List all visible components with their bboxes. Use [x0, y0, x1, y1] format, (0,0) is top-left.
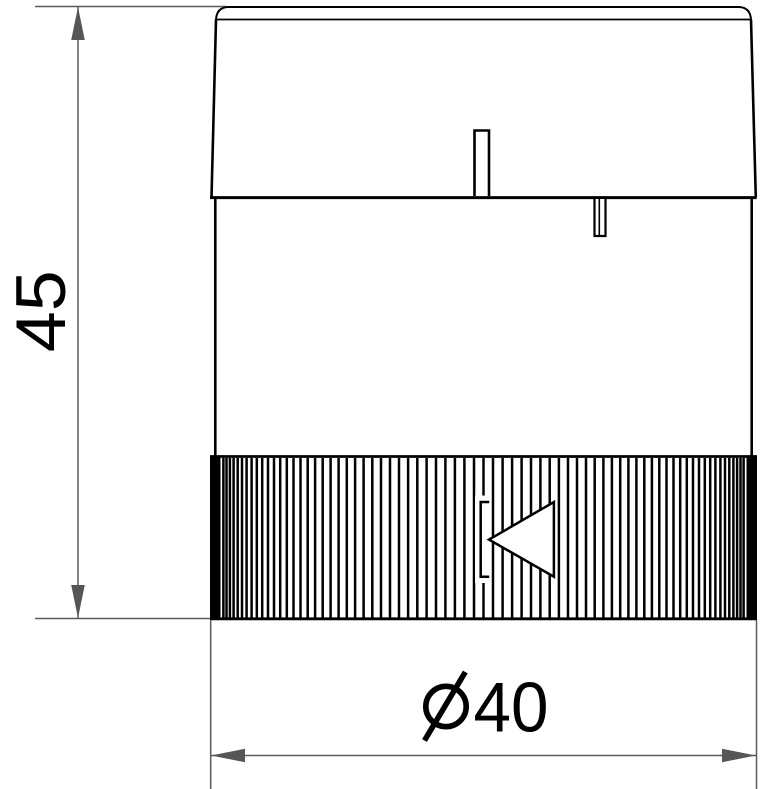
svg-text:45: 45 — [1, 270, 80, 352]
svg-text:40: 40 — [474, 668, 549, 747]
